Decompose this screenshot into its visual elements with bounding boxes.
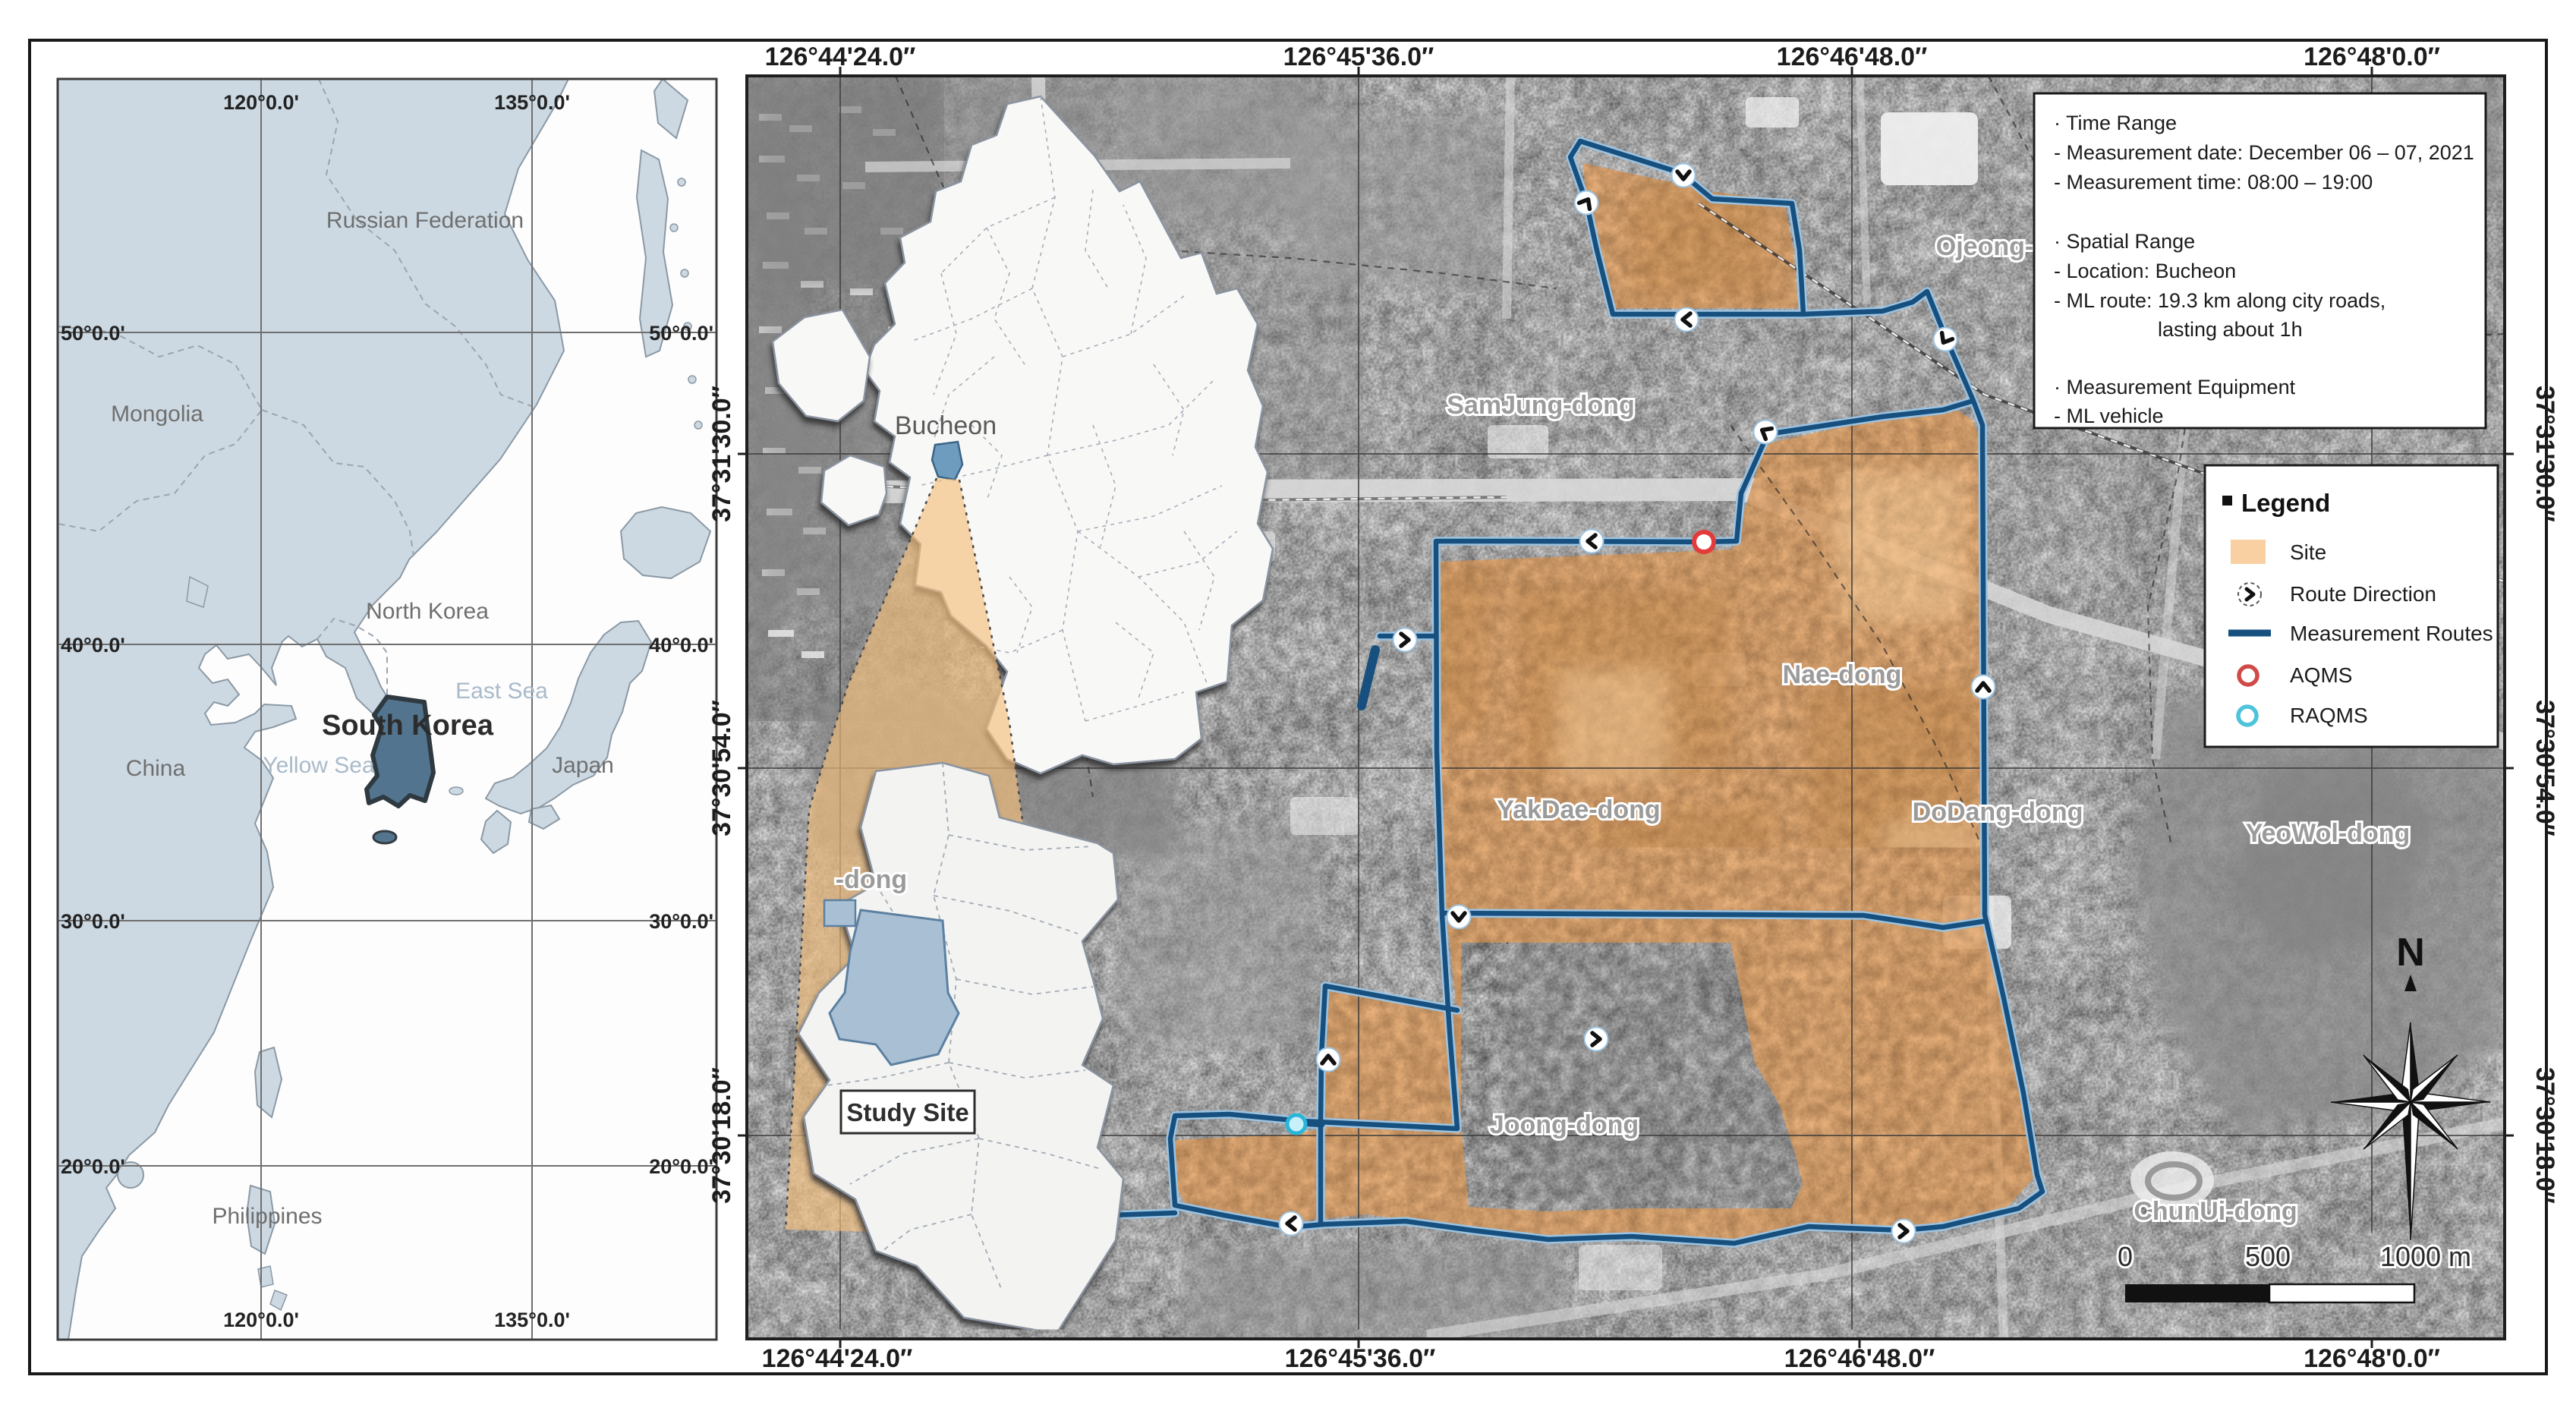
svg-text:40°0.0': 40°0.0' xyxy=(61,634,125,657)
svg-text:YakDae-dong: YakDae-dong xyxy=(1497,795,1660,824)
svg-text:Study Site: Study Site xyxy=(846,1098,968,1126)
svg-text:1000 m: 1000 m xyxy=(2380,1241,2471,1272)
svg-text:Bucheon: Bucheon xyxy=(895,411,997,440)
svg-text:30°0.0': 30°0.0' xyxy=(61,910,125,933)
svg-text:126°45'36.0″: 126°45'36.0″ xyxy=(1283,43,1434,71)
svg-text:- Measurement time: 08:00 – 19: - Measurement time: 08:00 – 19:00 xyxy=(2054,171,2373,194)
svg-text:- ML vehicle: - ML vehicle xyxy=(2054,405,2164,427)
svg-text:135°0.0': 135°0.0' xyxy=(494,91,570,114)
svg-text:30°0.0': 30°0.0' xyxy=(649,910,713,933)
svg-text:37°30'54.0″: 37°30'54.0″ xyxy=(707,700,736,836)
svg-text:Nae-dong: Nae-dong xyxy=(1783,660,1902,689)
svg-text:Mongolia: Mongolia xyxy=(111,402,203,427)
svg-text:- ML route: 19.3 km along city: - ML route: 19.3 km along city roads, xyxy=(2054,289,2385,312)
svg-text:N: N xyxy=(2396,931,2425,975)
svg-text:20°0.0': 20°0.0' xyxy=(649,1155,713,1178)
svg-text:DoDang-dong: DoDang-dong xyxy=(1913,798,2083,827)
svg-text:126°44'24.0″: 126°44'24.0″ xyxy=(765,43,916,71)
svg-text:37°30'54.0″: 37°30'54.0″ xyxy=(2530,700,2559,836)
svg-text:· Time Range: · Time Range xyxy=(2054,112,2177,134)
svg-text:20°0.0': 20°0.0' xyxy=(61,1155,125,1178)
svg-text:South Korea: South Korea xyxy=(322,710,494,742)
svg-text:Site: Site xyxy=(2290,540,2326,564)
svg-text:120°0.0': 120°0.0' xyxy=(223,1309,299,1331)
svg-text:37°30'18.0″: 37°30'18.0″ xyxy=(707,1067,736,1204)
svg-text:- Location: Bucheon: - Location: Bucheon xyxy=(2054,260,2236,282)
svg-text:lasting about 1h: lasting about 1h xyxy=(2158,318,2303,341)
svg-text:126°48'0.0″: 126°48'0.0″ xyxy=(2304,1344,2440,1373)
svg-text:AQMS: AQMS xyxy=(2290,663,2352,687)
svg-text:37°30'18.0″: 37°30'18.0″ xyxy=(2530,1067,2559,1204)
svg-text:Yellow Sea: Yellow Sea xyxy=(263,753,375,778)
svg-text:· Measurement Equipment: · Measurement Equipment xyxy=(2054,376,2296,398)
svg-text:50°0.0': 50°0.0' xyxy=(61,322,125,345)
svg-text:126°48'0.0″: 126°48'0.0″ xyxy=(2304,43,2440,71)
svg-text:40°0.0': 40°0.0' xyxy=(649,634,713,657)
svg-text:126°46'48.0″: 126°46'48.0″ xyxy=(1777,43,1928,71)
svg-text:East Sea: East Sea xyxy=(455,679,548,704)
svg-text:ChunUi-dong: ChunUi-dong xyxy=(2134,1197,2297,1226)
svg-text:50°0.0': 50°0.0' xyxy=(649,322,713,345)
svg-text:Joong-dong: Joong-dong xyxy=(1490,1110,1639,1139)
svg-text:120°0.0': 120°0.0' xyxy=(223,91,299,114)
svg-text:37°31'30.0″: 37°31'30.0″ xyxy=(2530,386,2559,522)
svg-text:YeoWol-dong: YeoWol-dong xyxy=(2246,819,2411,848)
svg-text:- Measurement date: December 0: - Measurement date: December 06 – 07, 20… xyxy=(2054,141,2474,164)
svg-text:Ojeong-: Ojeong- xyxy=(1936,232,2033,261)
svg-text:0: 0 xyxy=(2118,1241,2133,1272)
svg-text:RAQMS: RAQMS xyxy=(2290,704,2368,727)
svg-text:126°44'24.0″: 126°44'24.0″ xyxy=(762,1344,913,1373)
svg-text:500: 500 xyxy=(2245,1241,2291,1272)
svg-text:Route Direction: Route Direction xyxy=(2290,582,2436,606)
svg-text:37°31'30.0″: 37°31'30.0″ xyxy=(707,386,736,522)
svg-text:Russian Federation: Russian Federation xyxy=(326,208,524,233)
svg-text:135°0.0': 135°0.0' xyxy=(494,1309,570,1331)
svg-text:SamJung-dong: SamJung-dong xyxy=(1447,391,1634,420)
svg-text:Legend: Legend xyxy=(2241,489,2330,517)
svg-text:126°46'48.0″: 126°46'48.0″ xyxy=(1784,1344,1935,1373)
svg-text:-dong: -dong xyxy=(836,865,907,894)
svg-text:· Spatial Range: · Spatial Range xyxy=(2054,230,2195,253)
svg-text:Measurement Routes: Measurement Routes xyxy=(2290,622,2493,645)
svg-text:China: China xyxy=(126,756,186,781)
svg-text:126°45'36.0″: 126°45'36.0″ xyxy=(1285,1344,1436,1373)
svg-text:North Korea: North Korea xyxy=(366,599,489,624)
svg-text:Japan: Japan xyxy=(552,753,614,778)
svg-text:Philippines: Philippines xyxy=(212,1204,322,1229)
